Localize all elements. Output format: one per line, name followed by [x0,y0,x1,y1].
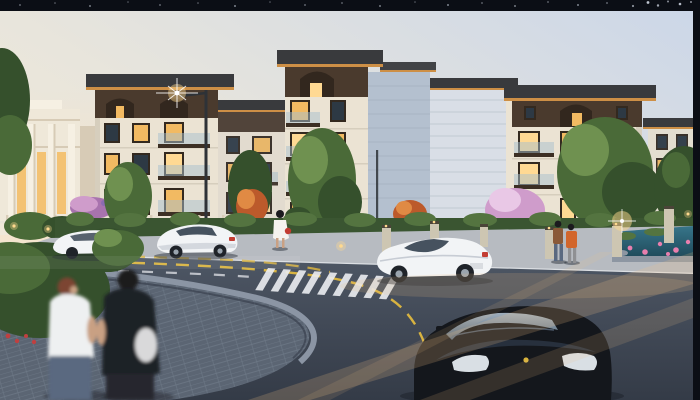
right-letterbox-strip [693,0,700,400]
photo-area [0,11,700,400]
screenshot-canvas [0,0,700,400]
taillight [229,237,235,241]
render-image [0,0,700,400]
white-bag [135,328,157,362]
red-bag [285,228,291,234]
taillight [482,252,488,257]
